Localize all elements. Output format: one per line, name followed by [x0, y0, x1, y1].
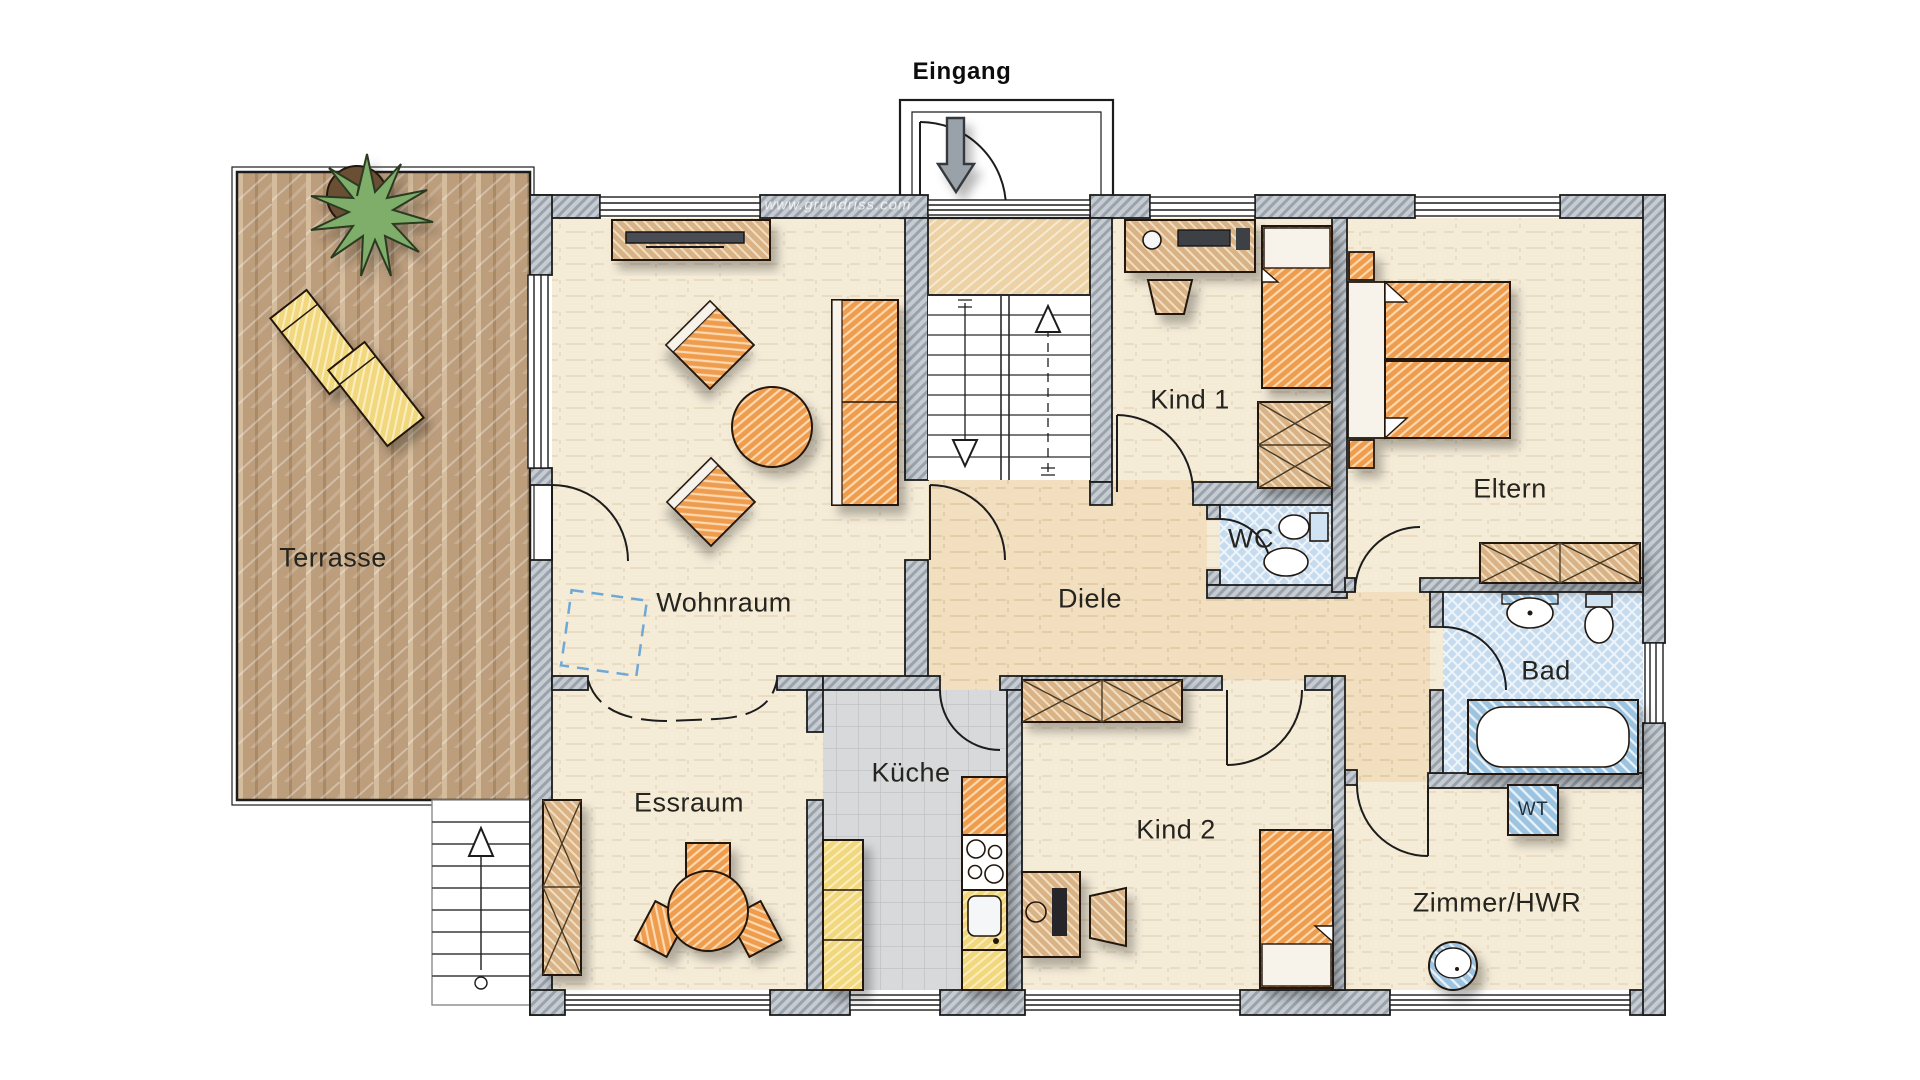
- laundry-tub: [1429, 942, 1477, 990]
- desk: [1022, 872, 1080, 957]
- room-label-kind2: Kind 2: [1136, 815, 1216, 846]
- room-label-zimmer-hwr: Zimmer/HWR: [1413, 888, 1581, 919]
- window: [928, 200, 1090, 215]
- room-label-essraum: Essraum: [634, 788, 744, 819]
- dining-cabinet: [543, 800, 581, 975]
- window: [1150, 197, 1255, 216]
- window: [1025, 995, 1240, 1010]
- washing-machine-label: WT: [1518, 799, 1549, 821]
- tv-sideboard: [612, 220, 770, 260]
- bed-child-1: [1262, 226, 1332, 388]
- tv-icon: [626, 232, 744, 243]
- wardrobe: [1022, 680, 1182, 722]
- desk-chair: [1148, 280, 1192, 314]
- room-label-wohnraum: Wohnraum: [656, 588, 792, 619]
- toilet: [1585, 594, 1613, 643]
- window: [600, 197, 760, 216]
- toilet: [1279, 513, 1328, 541]
- room-label-eltern: Eltern: [1473, 474, 1547, 505]
- kitchen-counter: [962, 777, 1007, 835]
- room-label-kueche: Küche: [871, 758, 950, 789]
- window: [1645, 643, 1663, 723]
- kitchen-sink: [962, 890, 1007, 950]
- window: [1415, 197, 1560, 216]
- watermark: www.grundriss.com: [764, 197, 911, 214]
- room-label-kind1: Kind 1: [1150, 385, 1230, 416]
- room-label-diele: Diele: [1058, 584, 1122, 615]
- window: [565, 995, 770, 1010]
- wardrobe: [1258, 402, 1332, 488]
- sofa: [832, 300, 898, 505]
- terrace: [232, 167, 534, 805]
- window: [1390, 995, 1630, 1010]
- room-label-bad: Bad: [1521, 656, 1571, 687]
- coffee-table: [732, 387, 812, 467]
- nightstand: [1349, 252, 1374, 280]
- entrance-label: Eingang: [913, 58, 1012, 86]
- bed-child-2: [1260, 830, 1333, 988]
- window: [528, 275, 548, 468]
- window: [850, 995, 940, 1010]
- cooktop: [962, 835, 1007, 890]
- wardrobe: [1480, 543, 1640, 583]
- bed-parents: [1348, 282, 1510, 438]
- desk: [1125, 220, 1255, 272]
- room-label-terrasse: Terrasse: [279, 543, 387, 574]
- exterior-stairs: [432, 800, 530, 1005]
- floor-plan-drawing: [0, 0, 1920, 1080]
- staircase: [928, 295, 1090, 480]
- nightstand: [1349, 440, 1374, 468]
- floor-plan-page: Eingang www.grundriss.com Terrasse Wohnr…: [0, 0, 1920, 1080]
- dining-table: [668, 871, 748, 951]
- desk-chair: [1090, 888, 1126, 946]
- bathtub: [1468, 700, 1638, 774]
- room-label-wc: WC: [1228, 524, 1274, 555]
